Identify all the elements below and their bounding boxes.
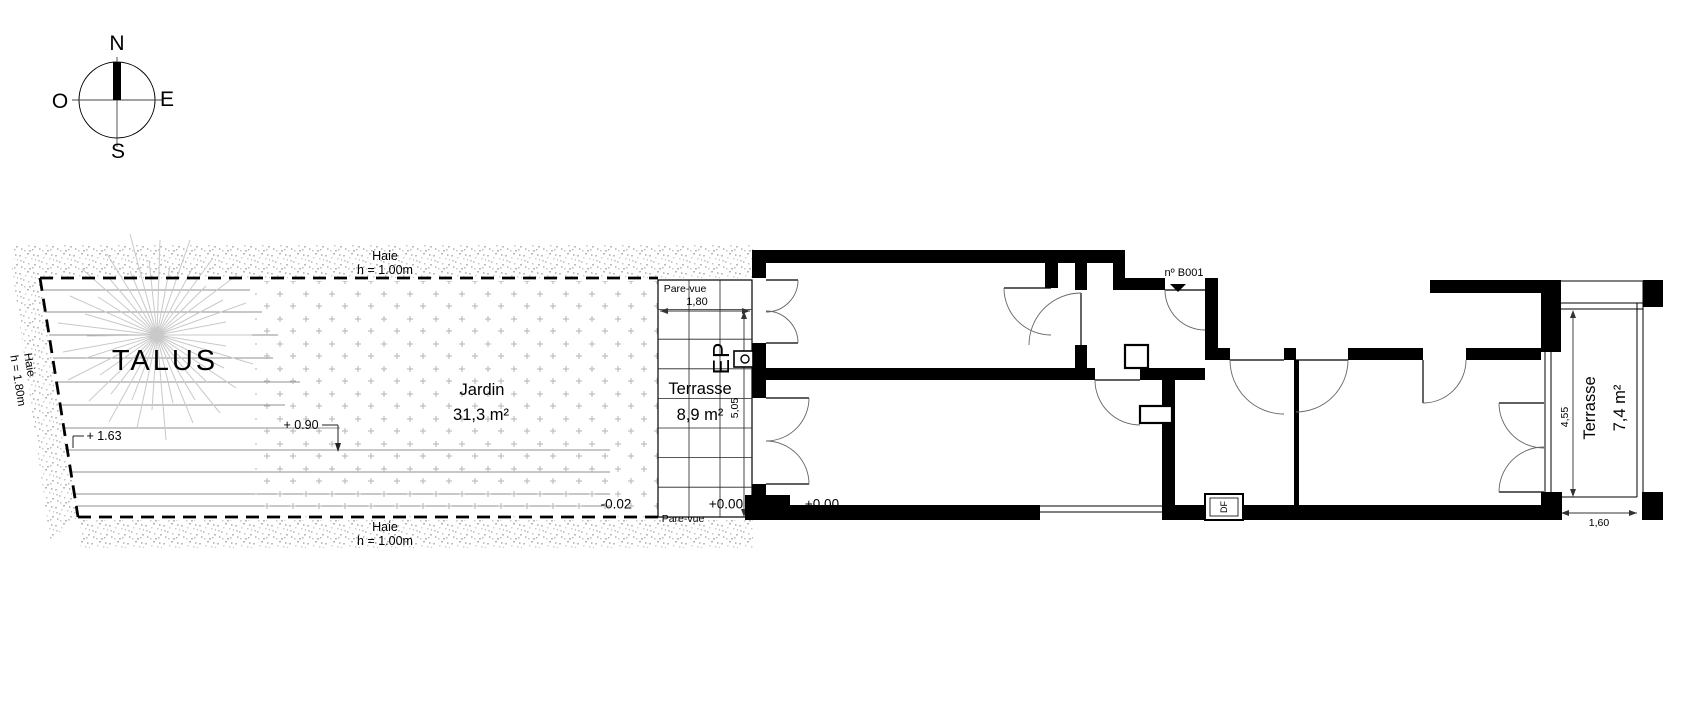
compass-rose [72,57,162,147]
hedge-band-bottom [80,520,753,548]
df-label: DF [1219,501,1229,513]
unit-number-label: nº B001 [1165,267,1204,279]
dim-1-60: 1,60 [1589,518,1609,530]
east-terrace-area: 7,4 m² [1611,385,1629,432]
floor-plan-page: N E S O Haie h = 1.00m Haie h = 1.00m Ha… [0,0,1695,706]
pare-vue-bottom-label: Pare-vue [662,514,705,526]
door-swing-arcs [766,280,1544,492]
garden-area: 31,3 m² [453,406,509,424]
interior-level: +0.00 [805,496,839,511]
west-terrace-level: +0.00 [709,496,743,511]
dim-5-05: 5,05 [730,398,742,418]
shaft-box-1 [1125,345,1148,368]
compass-west-label: O [52,90,68,114]
hedge-top-height: h = 1.00m [357,263,413,277]
compass-south-label: S [111,140,125,164]
west-terrace-area: 8,9 m² [677,406,724,424]
hedge-bottom-height: h = 1.00m [357,534,413,548]
dim-4-55: 4,55 [1560,407,1572,427]
dim-1-80: 1,80 [686,296,707,308]
compass-north-label: N [109,32,124,56]
east-terrace-name: Terrasse [1581,376,1599,439]
door-leaves [766,280,1544,492]
hedge-top-name: Haie [372,249,398,263]
floor-plan-drawing [0,0,1695,706]
garden-level: -0.02 [601,496,632,511]
pare-vue-top-label: Pare-vue [664,284,707,296]
garden-grass-pattern [255,281,658,517]
compass-east-label: E [160,88,174,112]
spot-level-lower: + 0.90 [283,418,318,432]
talus-label: TALUS [112,345,218,377]
west-terrace-name: Terrasse [668,380,731,398]
ep-downpipe-symbol [734,351,753,367]
compass-needle-icon [113,62,121,100]
ep-label: EP [709,342,735,375]
entrance-marker-icon [1170,284,1186,292]
shaft-box-2 [1140,406,1172,423]
hedge-bottom-name: Haie [372,520,398,534]
garden-name: Jardin [460,381,505,399]
spot-level-upper: + 1.63 [86,429,121,443]
